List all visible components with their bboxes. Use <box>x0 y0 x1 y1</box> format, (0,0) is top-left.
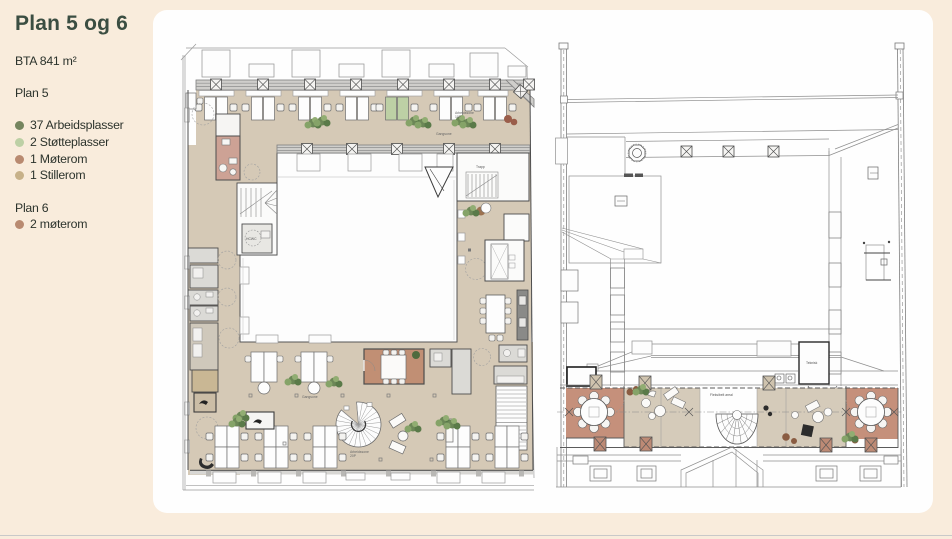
svg-text:Gangsone: Gangsone <box>302 395 318 399</box>
svg-text:10P: 10P <box>455 115 462 119</box>
svg-text:Teknisk: Teknisk <box>806 361 818 365</box>
svg-text:20P: 20P <box>350 454 357 458</box>
svg-text:Gangsone: Gangsone <box>436 132 452 136</box>
svg-text:Trapp: Trapp <box>476 165 485 169</box>
svg-text:Fleksibelt areal: Fleksibelt areal <box>710 393 733 397</box>
svg-text:HCWC: HCWC <box>246 237 257 241</box>
